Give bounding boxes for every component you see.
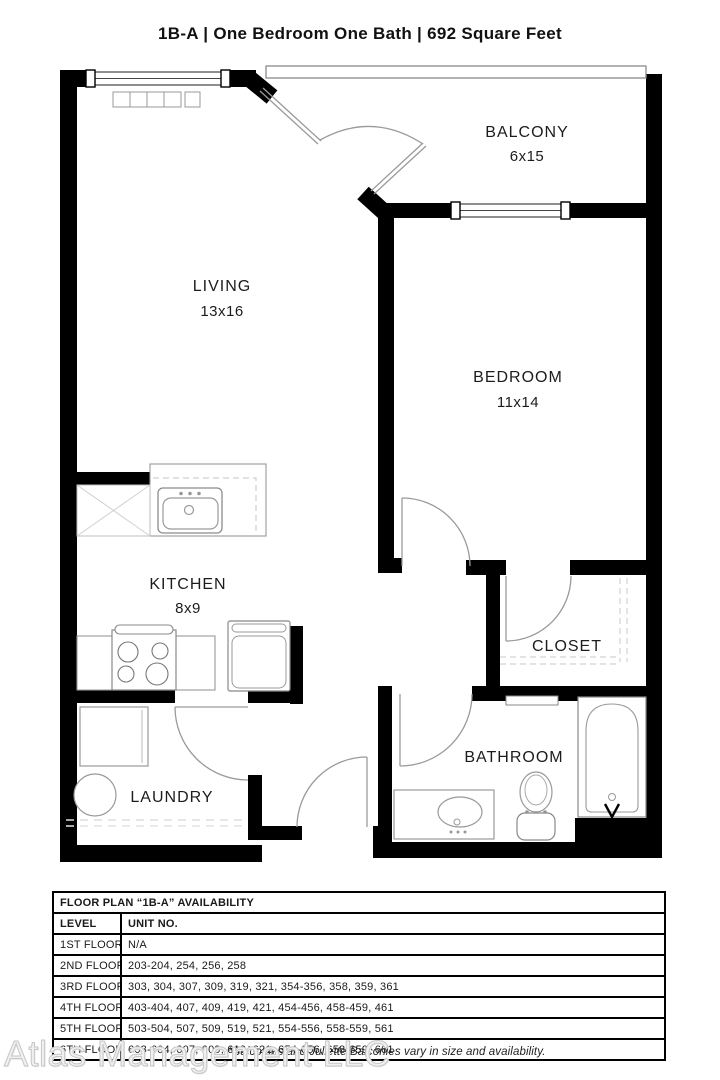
stove (112, 625, 176, 690)
units-cell: 403-404, 407, 409, 419, 421, 454-456, 45… (121, 997, 665, 1018)
table-title: FLOOR PLAN “1B-A” AVAILABILITY (53, 892, 665, 913)
level-cell: 4TH FLOOR (53, 997, 121, 1018)
table-row: 4TH FLOOR 403-404, 407, 409, 419, 421, 4… (53, 997, 665, 1018)
room-dims-living: 13x16 (200, 303, 243, 320)
floor-plan-drawing: LIVING 13x16 BALCONY 6x15 BEDROOM 11x14 … (0, 0, 720, 880)
dryer (74, 774, 116, 816)
wall-laundry-top-right (248, 690, 303, 703)
units-cell: 303, 304, 307, 309, 319, 321, 354-356, 3… (121, 976, 665, 997)
room-label-living: LIVING (193, 278, 251, 295)
floor-plan-page: 1B-A | One Bedroom One Bath | 692 Square… (0, 0, 720, 1080)
vanity-sink (394, 790, 494, 839)
baseboard-heater (113, 92, 200, 107)
wall-bottom-left (60, 845, 262, 862)
entry-door-swing (297, 757, 367, 827)
closet-door (506, 576, 571, 641)
room-label-bedroom: BEDROOM (473, 369, 563, 386)
laundry-door-swing (175, 707, 248, 780)
room-label-kitchen: KITCHEN (149, 576, 226, 593)
table-row: 2ND FLOOR 203-204, 254, 256, 258 (53, 955, 665, 976)
col-header-unit: UNIT NO. (121, 913, 665, 934)
room-label-balcony: BALCONY (485, 124, 568, 141)
page-title: 1B-A | One Bedroom One Bath | 692 Square… (0, 24, 720, 44)
room-label-bathroom: BATHROOM (464, 749, 563, 766)
wall-diagonal-stub-bottom (363, 193, 384, 212)
watermark: Atlas Management LLC (4, 1033, 390, 1075)
closet-door-swing (506, 576, 571, 641)
wall-entry-jamb-right (373, 826, 390, 842)
table-title-row: FLOOR PLAN “1B-A” AVAILABILITY (53, 892, 665, 913)
wall-bedroom-bottom-2 (570, 560, 646, 575)
shower-niche (506, 696, 558, 705)
refrigerator (228, 621, 290, 691)
wall-diagonal-stub-top (250, 79, 272, 97)
wall-entry-jamb-left (248, 826, 302, 840)
level-cell: 3RD FLOOR (53, 976, 121, 997)
wall-right (646, 74, 662, 858)
wall-tub-surround (575, 818, 662, 844)
bedroom-door-swing (402, 498, 470, 566)
wall-laundry-right (248, 775, 262, 830)
room-label-closet: CLOSET (532, 638, 602, 655)
table-row: 1ST FLOOR N/A (53, 934, 665, 955)
balcony-railing (266, 66, 646, 78)
balcony-door-swing (320, 126, 423, 144)
room-dims-bedroom: 11x14 (497, 394, 539, 411)
bathroom-door (400, 694, 472, 766)
wall-left (60, 70, 77, 862)
room-dims-kitchen: 8x9 (175, 600, 201, 617)
balcony-door (260, 88, 426, 194)
bathtub (578, 697, 646, 817)
level-cell: 1ST FLOOR (53, 934, 121, 955)
wall-laundry-top-left (60, 690, 175, 703)
laundry-door (175, 707, 248, 780)
toilet (517, 772, 555, 840)
wall-closet-left (486, 566, 500, 688)
kitchen-sink (158, 488, 222, 533)
wall-bedroom-top-right (569, 203, 646, 218)
wall-divider-foot (378, 558, 402, 573)
table-header-row: LEVEL UNIT NO. (53, 913, 665, 934)
washer (80, 707, 148, 766)
units-cell: N/A (121, 934, 665, 955)
wall-kitchen-stub (60, 472, 152, 486)
room-label-laundry: LAUNDRY (130, 789, 213, 806)
wall-living-bedroom-divider (378, 203, 394, 565)
bedroom-door (402, 498, 470, 566)
laundry-fixtures (66, 707, 246, 826)
col-header-level: LEVEL (53, 913, 121, 934)
room-dims-balcony: 6x15 (510, 148, 545, 165)
wall-bedroom-top-left (384, 203, 454, 218)
level-cell: 2ND FLOOR (53, 955, 121, 976)
table-row: 3RD FLOOR 303, 304, 307, 309, 319, 321, … (53, 976, 665, 997)
wall-bathroom-left (378, 686, 392, 844)
entry-door (297, 757, 367, 827)
bathroom-door-swing (400, 694, 472, 766)
wall-bottom-right (373, 842, 662, 858)
units-cell: 203-204, 254, 256, 258 (121, 955, 665, 976)
